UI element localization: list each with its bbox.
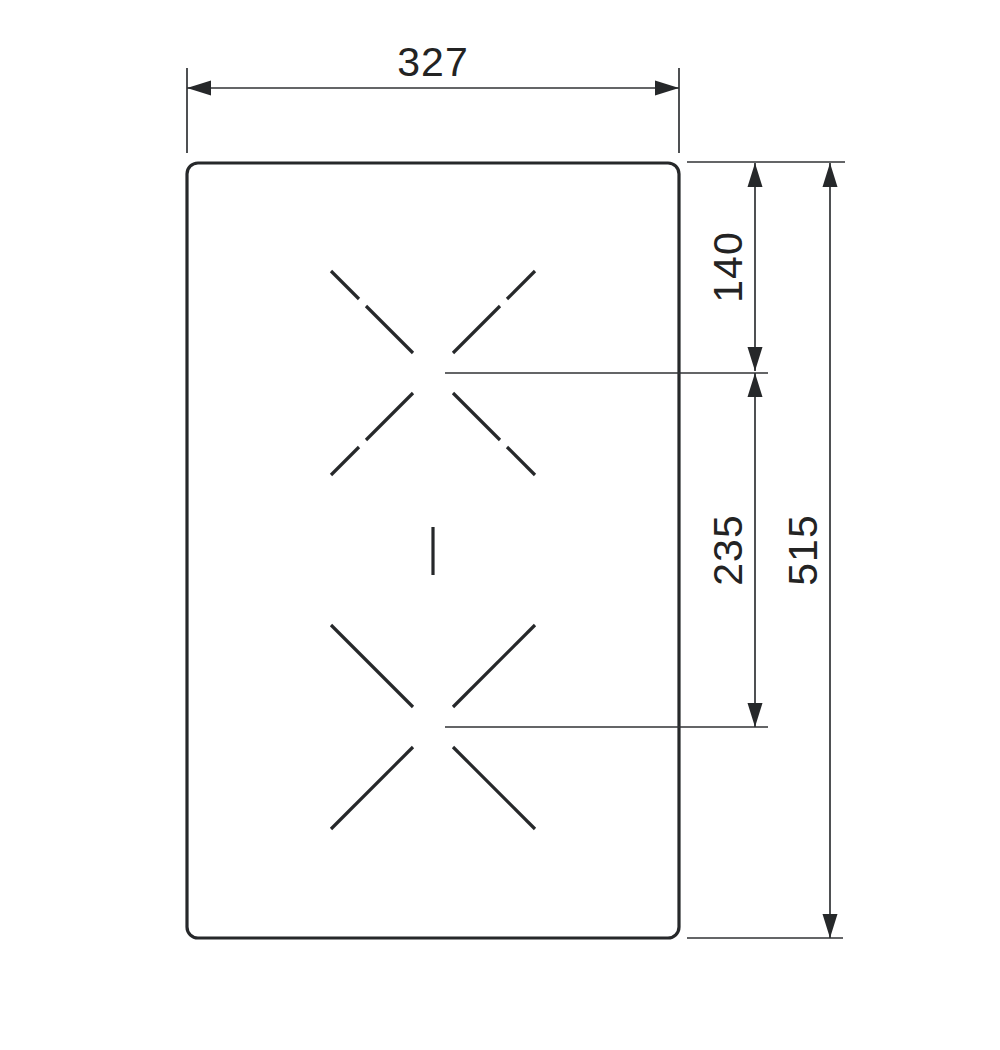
arrowhead-down-icon [823,914,838,938]
arrowhead-up-icon [748,163,763,187]
dimension-drawing-canvas: 327 140 235 515 [0,0,1000,1050]
dimension-label-515: 515 [780,514,826,585]
dimension-140: 140 [705,163,763,371]
cooktop-dimension-diagram: 327 140 235 515 [0,0,1000,1050]
arrowhead-right-icon [655,81,679,96]
dimension-width: 327 [187,39,679,153]
dimension-label-235: 235 [705,514,751,585]
arrowhead-up-icon [823,163,838,187]
dimension-label-width: 327 [397,39,468,85]
dimension-label-140: 140 [705,231,751,302]
arrowhead-down-icon [748,703,763,727]
dimension-235: 235 [705,373,763,727]
dimension-515: 515 [780,163,838,938]
arrowhead-left-icon [187,81,211,96]
arrowhead-up-icon [748,373,763,397]
arrowhead-down-icon [748,347,763,371]
